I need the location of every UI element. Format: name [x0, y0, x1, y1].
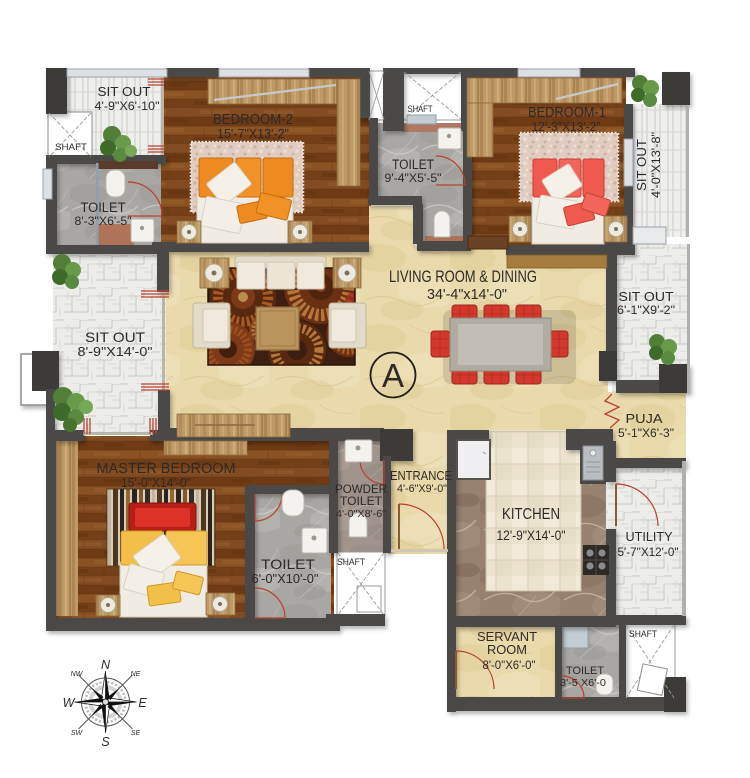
svg-text:12'-9"X14'-0": 12'-9"X14'-0" — [497, 527, 566, 543]
svg-text:LIVING ROOM & DINING: LIVING ROOM & DINING — [389, 267, 537, 286]
svg-text:SHAFT: SHAFT — [337, 557, 365, 568]
svg-text:9'-4"X5'-5": 9'-4"X5'-5" — [385, 171, 442, 185]
svg-text:4'-9"X6'-10": 4'-9"X6'-10" — [95, 99, 160, 113]
svg-text:3'-5 X6'-0: 3'-5 X6'-0 — [560, 678, 606, 689]
svg-text:KITCHEN: KITCHEN — [502, 506, 560, 523]
svg-text:SIT OUT: SIT OUT — [85, 329, 145, 345]
svg-text:4'-0"X8'-6": 4'-0"X8'-6" — [336, 508, 386, 520]
svg-text:TOILET: TOILET — [566, 665, 604, 677]
svg-text:E: E — [138, 696, 147, 710]
svg-text:6'-1"X9'-2": 6'-1"X9'-2" — [617, 305, 675, 317]
svg-text:ROOM: ROOM — [487, 643, 527, 657]
svg-text:TOILET: TOILET — [392, 157, 434, 172]
svg-text:SIT OUT: SIT OUT — [635, 139, 649, 191]
svg-text:15'-7"X13'-2": 15'-7"X13'-2" — [217, 126, 289, 141]
svg-text:6'-0"X10'-0": 6'-0"X10'-0" — [252, 572, 319, 586]
svg-text:5'-7"X12'-0": 5'-7"X12'-0" — [618, 547, 679, 559]
svg-text:15'-0"X14'-0": 15'-0"X14'-0" — [121, 475, 191, 490]
svg-text:8'-3"X6'-5": 8'-3"X6'-5" — [75, 214, 132, 228]
svg-text:POWDER: POWDER — [335, 484, 387, 496]
svg-text:TOILET: TOILET — [261, 556, 315, 572]
svg-text:8'-0"X6'-0": 8'-0"X6'-0" — [483, 660, 536, 672]
svg-text:SERVANT: SERVANT — [477, 630, 537, 644]
svg-text:SIT OUT: SIT OUT — [98, 84, 151, 99]
svg-text:SHAFT: SHAFT — [408, 104, 433, 115]
svg-text:TOILET: TOILET — [81, 200, 126, 215]
svg-text:TOILET: TOILET — [340, 496, 382, 508]
svg-text:SW: SW — [71, 730, 84, 737]
svg-text:NW: NW — [71, 671, 84, 678]
svg-text:S: S — [101, 735, 110, 749]
svg-text:SIT OUT: SIT OUT — [619, 289, 674, 304]
svg-text:4'-6"X9'-0": 4'-6"X9'-0" — [397, 483, 447, 495]
svg-text:34'-4"x14'-0": 34'-4"x14'-0" — [427, 287, 507, 303]
svg-text:SHAFT: SHAFT — [55, 142, 87, 153]
svg-text:4'-0"X13'-8": 4'-0"X13'-8" — [651, 132, 663, 198]
svg-text:W: W — [63, 696, 76, 710]
svg-text:ENTRANCE: ENTRANCE — [390, 469, 452, 483]
svg-text:5'-1"X6'-3": 5'-1"X6'-3" — [618, 428, 674, 440]
svg-text:A: A — [382, 357, 404, 394]
svg-text:NE: NE — [131, 671, 141, 678]
svg-text:PUJA: PUJA — [626, 411, 663, 426]
svg-text:SHAFT: SHAFT — [629, 629, 657, 640]
svg-text:UTILITY: UTILITY — [626, 529, 673, 544]
svg-text:8'-9"X14'-0": 8'-9"X14'-0" — [78, 344, 153, 359]
svg-text:12'-3"X13'-2": 12'-3"X13'-2" — [532, 119, 601, 134]
svg-text:SE: SE — [131, 730, 141, 737]
svg-text:N: N — [101, 658, 111, 672]
